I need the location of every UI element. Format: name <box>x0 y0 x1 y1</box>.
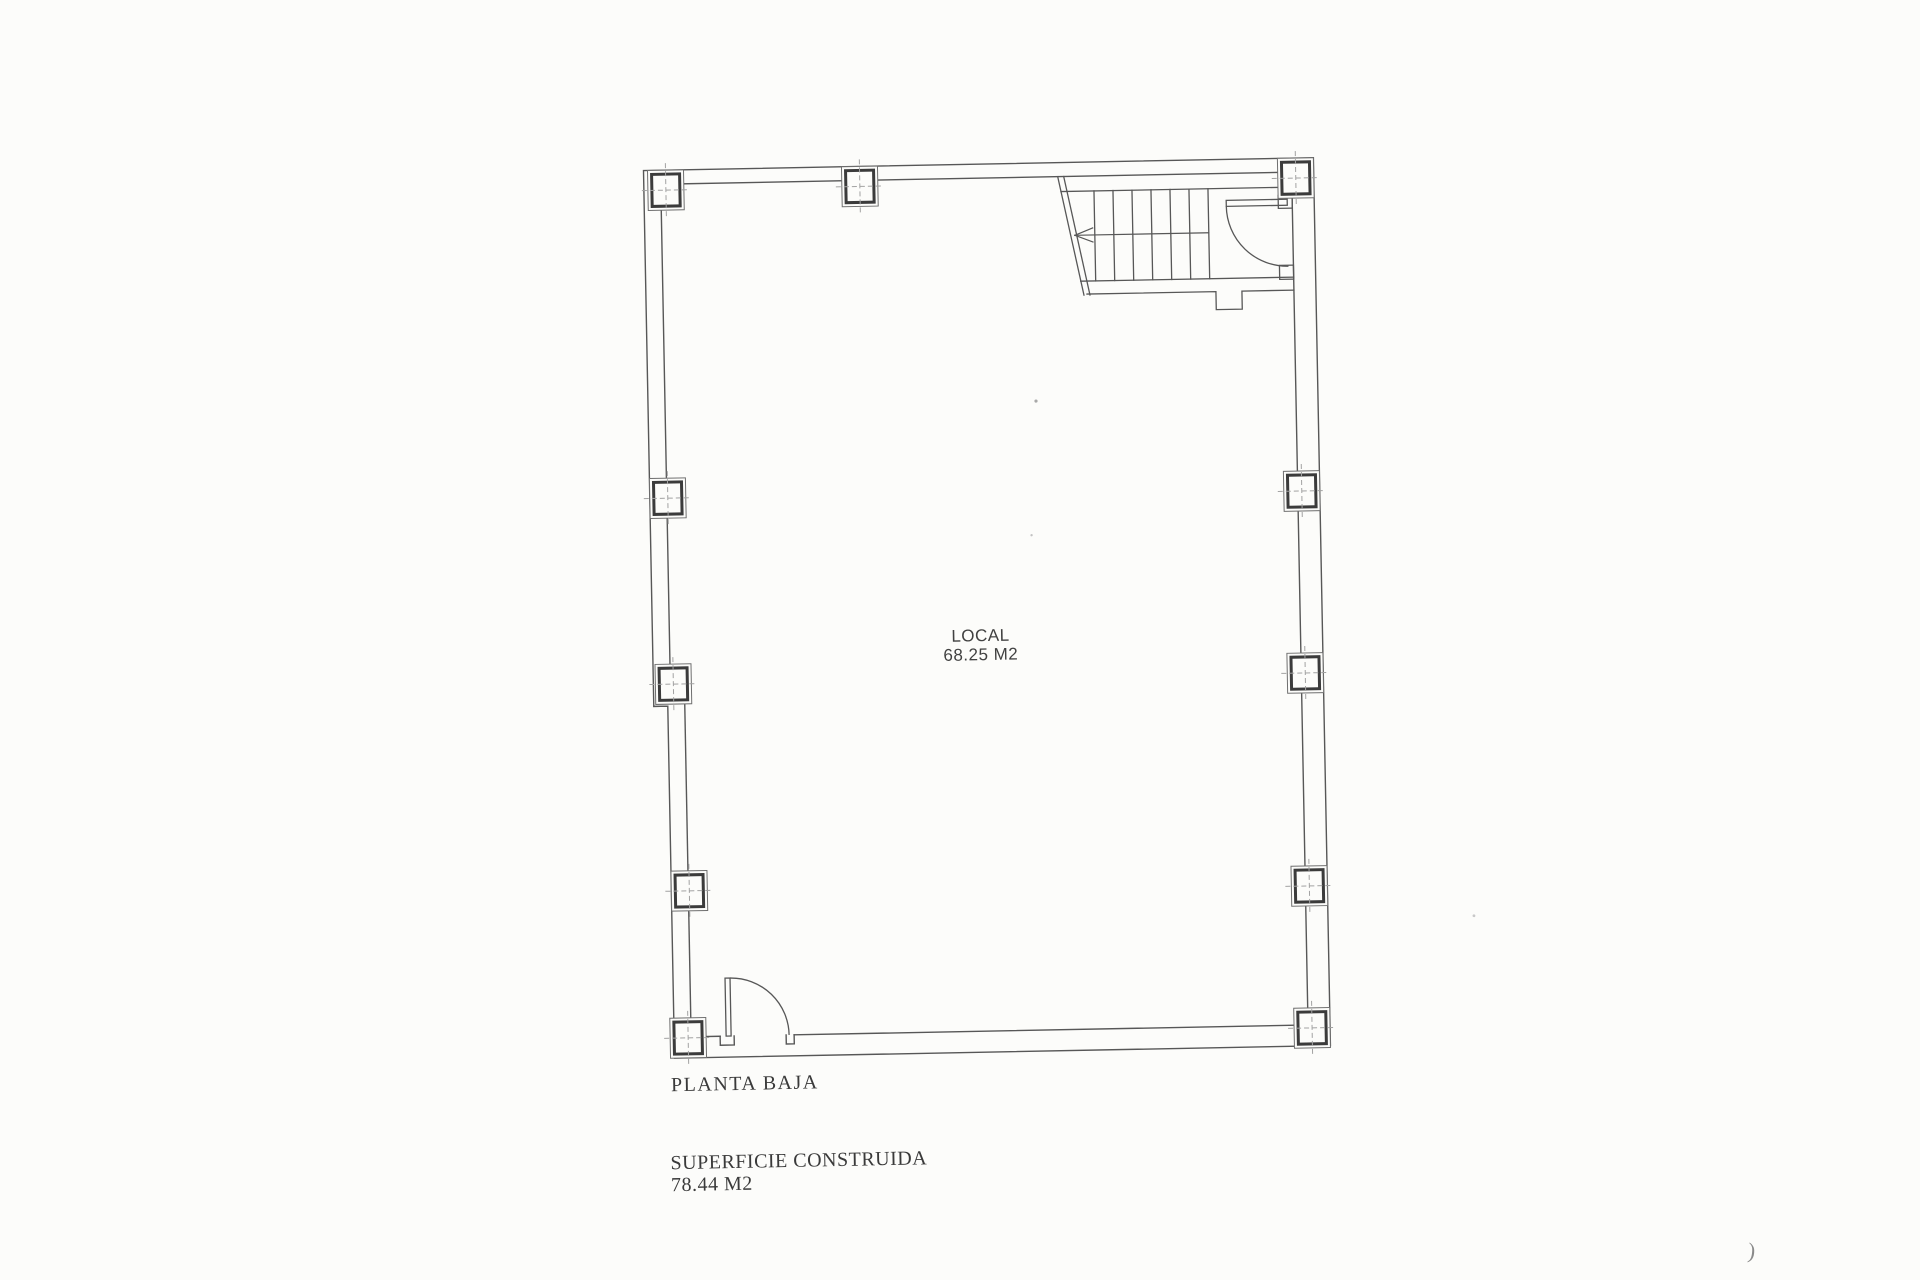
column <box>665 863 714 918</box>
floor-title: PLANTA BAJA <box>671 1071 819 1097</box>
column <box>1288 1000 1337 1055</box>
door-leaf <box>725 978 731 1036</box>
inner-wall-top <box>661 172 1292 184</box>
column <box>643 471 692 526</box>
inner-wall-left-upper <box>661 184 671 684</box>
structural-columns <box>637 151 1336 1068</box>
column <box>1285 858 1334 913</box>
built-area-block: SUPERFICIE CONSTRUIDA 78.44 M2 <box>670 1147 927 1196</box>
column <box>641 163 690 218</box>
column <box>649 657 698 712</box>
stair-landing-door <box>1226 195 1294 280</box>
room-label-block: LOCAL 68.25 M2 <box>943 625 1019 664</box>
column <box>835 159 884 214</box>
door-jamb-left <box>720 1036 734 1045</box>
outer-wall <box>644 158 1331 1059</box>
door-swing-arc <box>1226 205 1288 267</box>
under-stair-wall <box>1087 290 1294 312</box>
door-jamb-right <box>786 1035 794 1044</box>
staircase <box>1058 172 1295 312</box>
floor-plan-scan: LOCAL 68.25 M2 PLANTA BAJA SUPERFICIE CO… <box>0 0 1920 1280</box>
stair-slant-wall <box>1058 176 1084 295</box>
room-name: LOCAL <box>943 625 1018 645</box>
room-area: 68.25 M2 <box>943 644 1018 664</box>
stair-top-edge <box>1061 187 1292 191</box>
column <box>664 1010 713 1065</box>
door-swing-arc <box>730 977 789 1036</box>
walls <box>644 158 1331 1059</box>
column <box>1281 646 1330 701</box>
stair-landing-divider <box>1208 189 1210 279</box>
stair-bottom-edge <box>1081 277 1294 281</box>
column <box>1271 151 1320 206</box>
column <box>1277 464 1326 519</box>
scan-specks <box>1028 391 1476 925</box>
entrance-door <box>725 977 789 1036</box>
scanned-floor-plan-page: LOCAL 68.25 M2 PLANTA BAJA SUPERFICIE CO… <box>0 0 1920 1280</box>
inner-wall-bottom-right <box>794 1025 1308 1035</box>
